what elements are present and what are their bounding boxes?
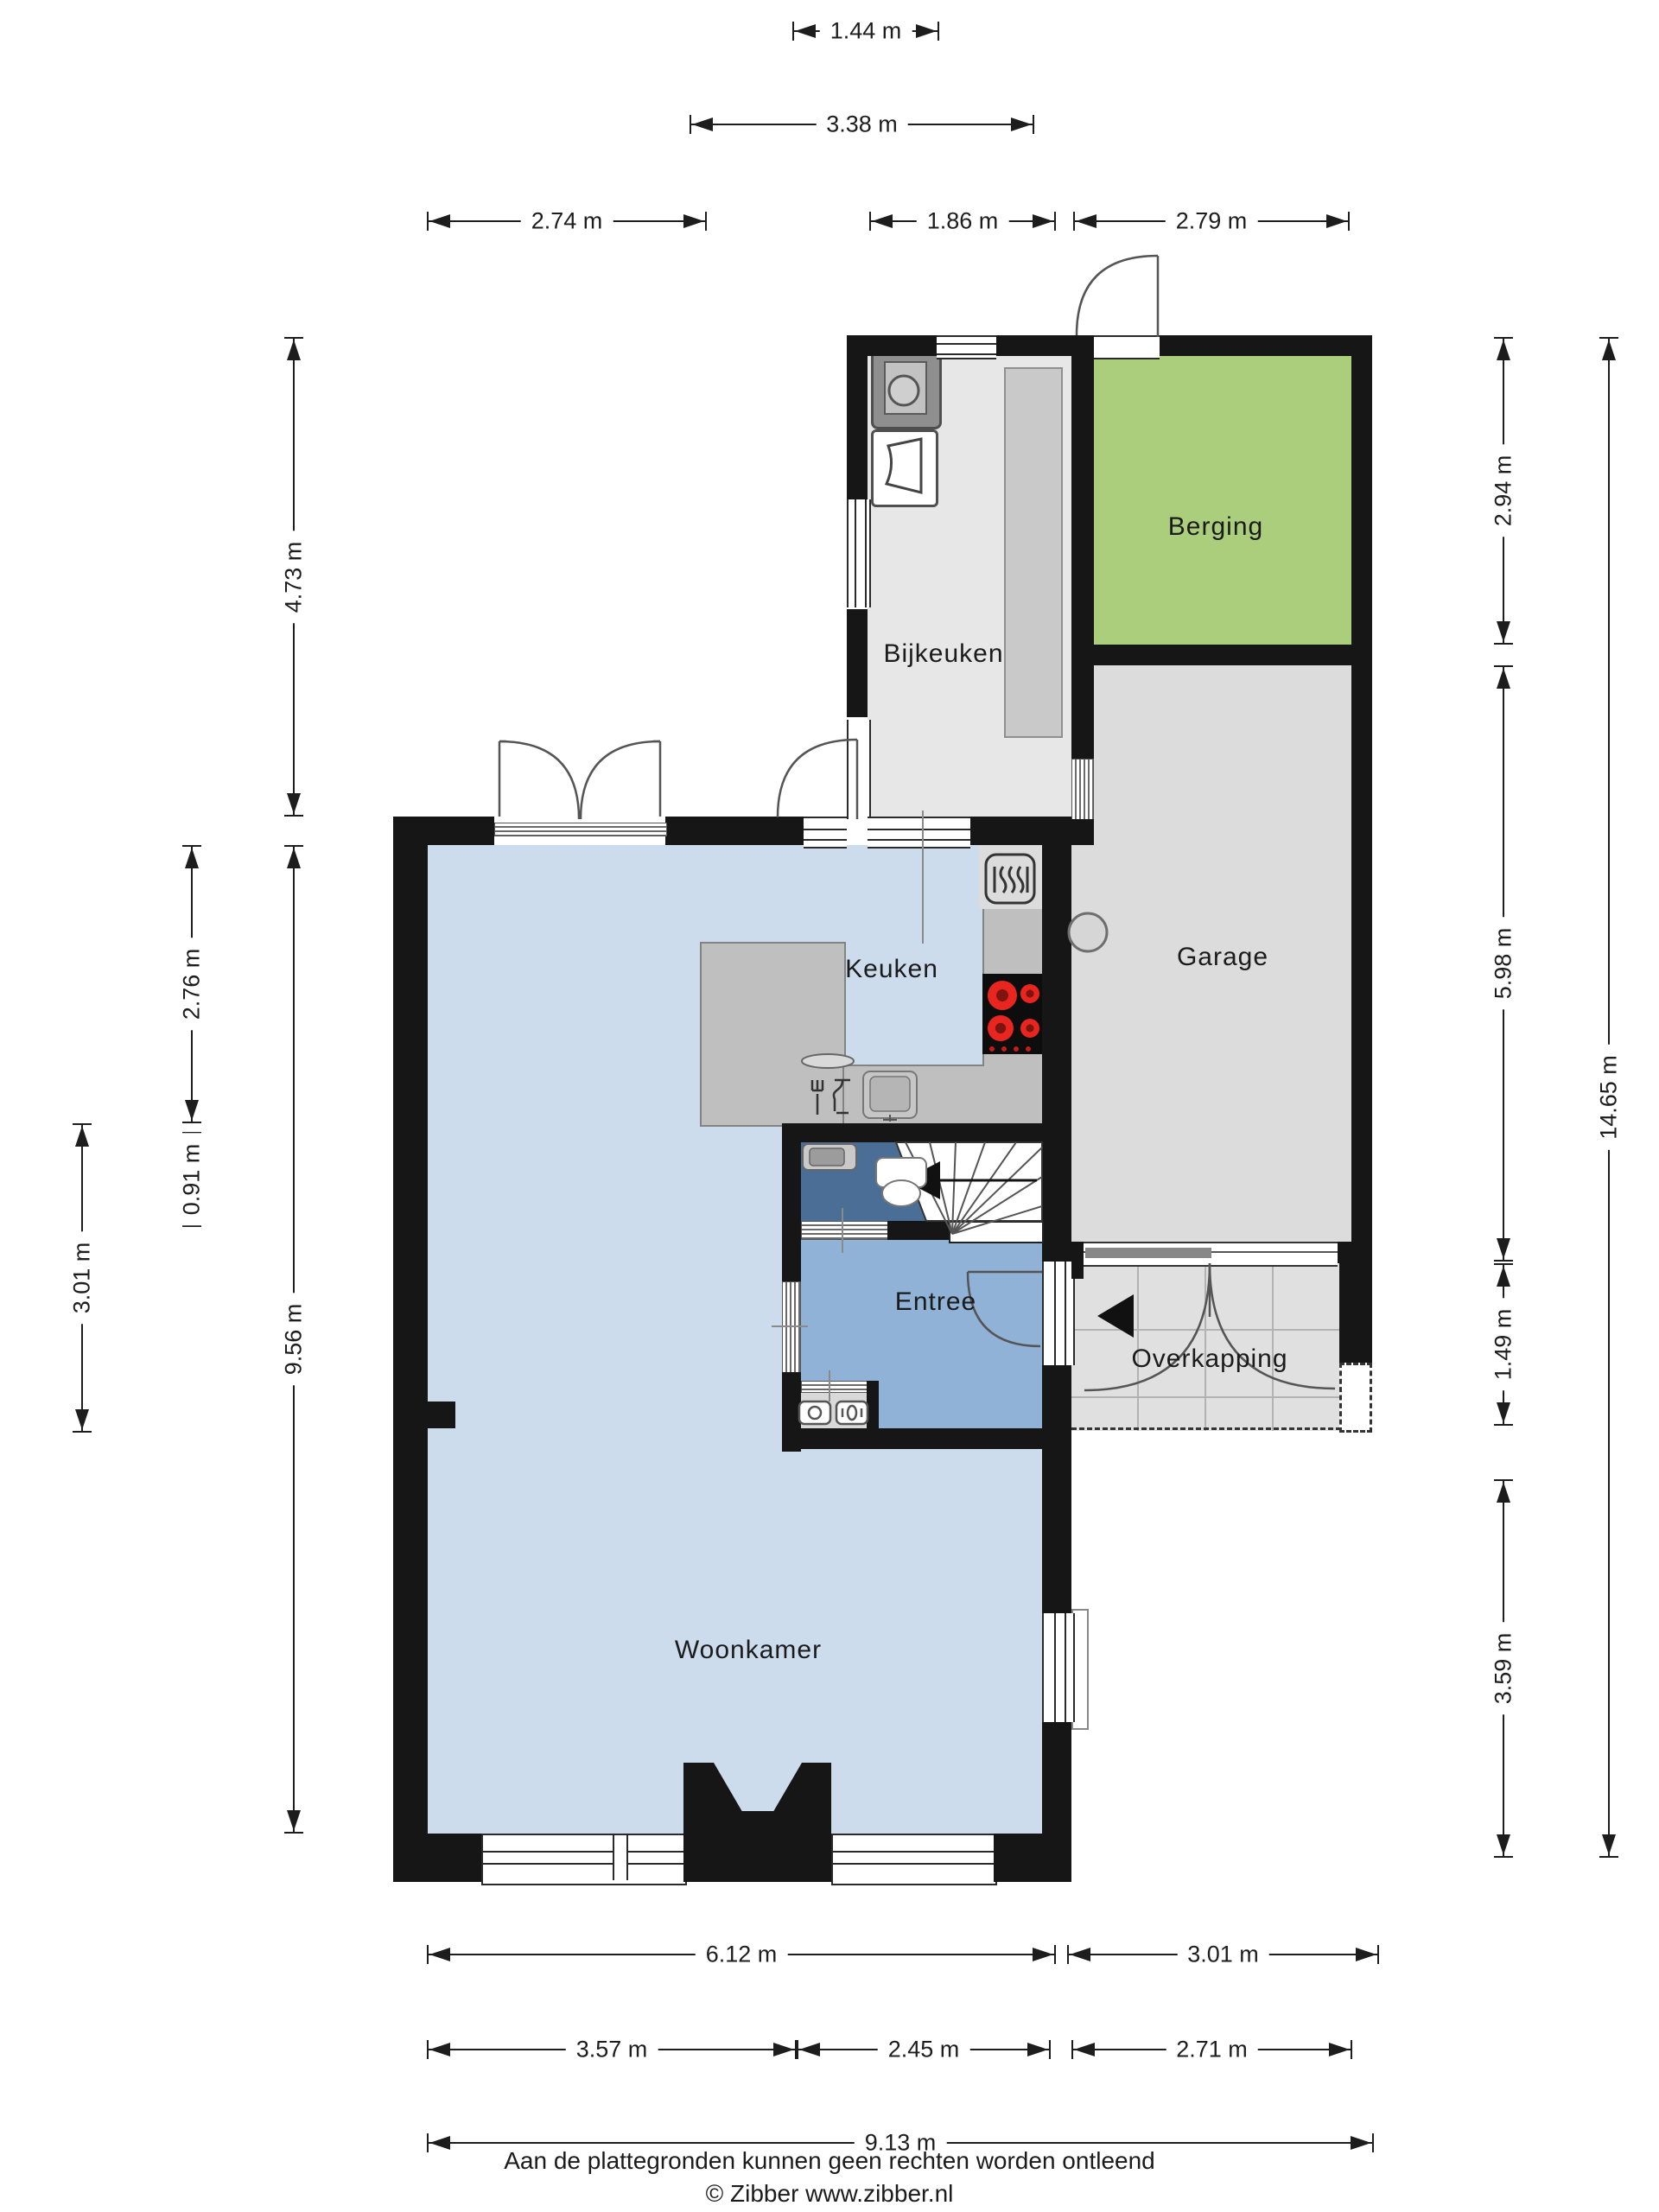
dim-5-98: 5.98 m — [1488, 665, 1519, 1262]
dim-6-12: 6.12 m — [427, 1939, 1056, 1970]
entrance-arrow-icon — [1097, 1294, 1134, 1338]
dim-3-59: 3.59 m — [1488, 1479, 1519, 1858]
dim-1-49: 1.49 m — [1488, 1263, 1519, 1426]
washer-drum — [889, 376, 918, 405]
dim-2-45: 2.45 m — [797, 2034, 1051, 2065]
footer-line2: © Zibber www.zibber.nl — [0, 2177, 1659, 2210]
dim-2-71: 2.71 m — [1071, 2034, 1352, 2065]
room-label-entree: Entree — [895, 1287, 976, 1317]
dim-4-73: 4.73 m — [278, 337, 309, 817]
toilet-icon — [876, 1158, 926, 1206]
laundry-basket-outline — [887, 439, 921, 493]
dim-2-74: 2.74 m — [427, 206, 707, 237]
dim-0-91: 0.91 m — [176, 1132, 207, 1227]
door-arc-icon — [778, 740, 857, 819]
dim-2-79: 2.79 m — [1073, 206, 1350, 237]
dim-3-01-bottom: 3.01 m — [1067, 1939, 1379, 1970]
wall-column-icon — [1069, 913, 1107, 951]
room-label-overkapping: Overkapping — [1131, 1344, 1287, 1374]
floor-plan: Berging Bijkeuken Garage Keuken Entree O… — [0, 0, 1659, 2212]
dim-14-65: 14.65 m — [1593, 337, 1624, 1858]
room-label-berging: Berging — [1168, 512, 1263, 542]
dim-3-01-left: 3.01 m — [67, 1123, 98, 1433]
room-label-woonkamer: Woonkamer — [675, 1636, 822, 1665]
dim-1-86: 1.86 m — [869, 206, 1056, 237]
room-label-keuken: Keuken — [845, 955, 938, 984]
dishwasher-icon — [812, 1080, 850, 1115]
plan-symbols — [0, 0, 1659, 2212]
meter-icon — [799, 1402, 868, 1424]
door-arc-icon — [968, 1272, 1042, 1346]
dim-2-76: 2.76 m — [176, 845, 207, 1123]
footer-line1: Aan de plattegronden kunnen geen rechten… — [0, 2145, 1659, 2177]
hand-basin-icon — [803, 1144, 856, 1170]
dim-2-94: 2.94 m — [1488, 337, 1519, 645]
dim-1-44: 1.44 m — [792, 16, 939, 47]
footer-disclaimer: Aan de plattegronden kunnen geen rechten… — [0, 2145, 1659, 2210]
door-arc-icon — [499, 741, 660, 819]
dim-3-57: 3.57 m — [427, 2034, 797, 2065]
room-label-bijkeuken: Bijkeuken — [883, 639, 1003, 669]
dim-3-38: 3.38 m — [690, 109, 1034, 140]
door-arc-icon — [1077, 256, 1158, 337]
dim-9-56: 9.56 m — [278, 845, 309, 1834]
room-label-garage: Garage — [1177, 943, 1268, 972]
kitchen-sink-icon — [802, 1054, 917, 1122]
radiator-icon — [986, 855, 1034, 903]
